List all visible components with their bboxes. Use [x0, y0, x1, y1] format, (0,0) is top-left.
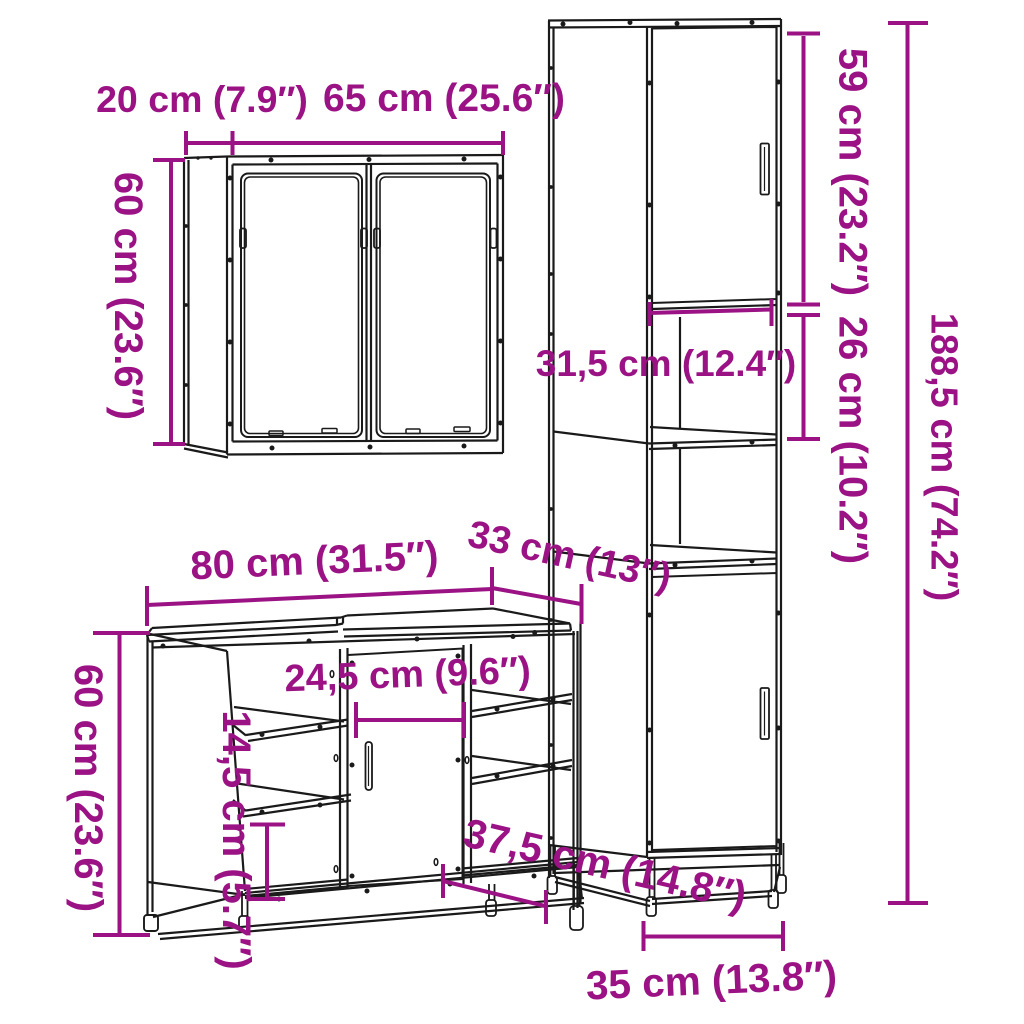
svg-text:20 cm (7.9″): 20 cm (7.9″) [96, 78, 308, 120]
svg-text:65 cm (25.6″): 65 cm (25.6″) [323, 77, 565, 120]
svg-text:59 cm (23.2″): 59 cm (23.2″) [831, 48, 875, 296]
svg-text:188,5 cm (74.2″): 188,5 cm (74.2″) [923, 313, 965, 602]
svg-text:60 cm (23.6″): 60 cm (23.6″) [66, 664, 110, 912]
svg-text:31,5 cm (12.4″): 31,5 cm (12.4″) [536, 343, 796, 384]
svg-text:60 cm (23.6″): 60 cm (23.6″) [106, 172, 150, 420]
svg-text:26 cm (10.2″): 26 cm (10.2″) [831, 316, 875, 564]
svg-text:14,5 cm (5.7″): 14,5 cm (5.7″) [214, 710, 258, 969]
svg-text:24,5 cm (9.6″): 24,5 cm (9.6″) [284, 650, 532, 701]
